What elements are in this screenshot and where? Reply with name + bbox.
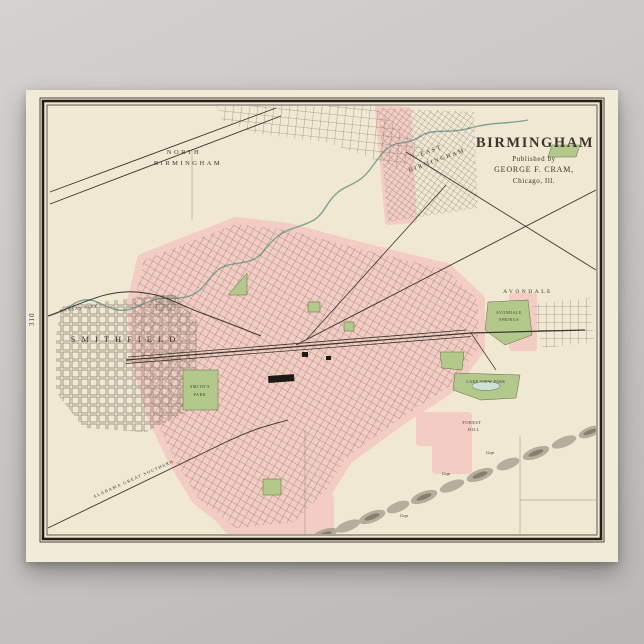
smiths-park-shape xyxy=(183,370,218,410)
park-label-avondale-springs: AVONDALE xyxy=(496,311,522,315)
gap-label: Gap xyxy=(400,513,409,518)
park-label-lake-view: LAKE VIEW PARK xyxy=(466,380,505,384)
district-label-smithfield: SMITHFIELD xyxy=(71,334,182,344)
district-label-north-birmingham: BIRMINGHAM xyxy=(154,160,222,167)
district-label-north-birmingham: NORTH xyxy=(167,149,202,156)
grid-avondale-blocks xyxy=(532,298,594,348)
gap-label: Gap xyxy=(486,450,495,455)
park-label-smiths-park: SMITH'S xyxy=(190,385,210,389)
district-label-avondale: AVONDALE xyxy=(503,289,553,295)
park-label-forest-hill: HILL xyxy=(468,427,480,432)
gap-label: Gap xyxy=(442,471,451,476)
title-published-by: Published by xyxy=(512,155,556,163)
map-title: BIRMINGHAM xyxy=(476,135,594,151)
title-publisher-city: Chicago, Ill. xyxy=(513,177,555,185)
park-label-avondale-springs: SPRINGS xyxy=(499,318,519,322)
title-publisher: GEORGE F. CRAM, xyxy=(494,165,574,174)
page-number: 310 xyxy=(28,313,36,327)
map-svg: 310 xyxy=(26,90,618,562)
park-label-forest-hill: FOREST xyxy=(462,420,481,425)
map-poster: 310 xyxy=(26,90,618,562)
park-label-smiths-park: PARK xyxy=(194,393,207,397)
product-photo-background: 310 xyxy=(0,0,644,644)
